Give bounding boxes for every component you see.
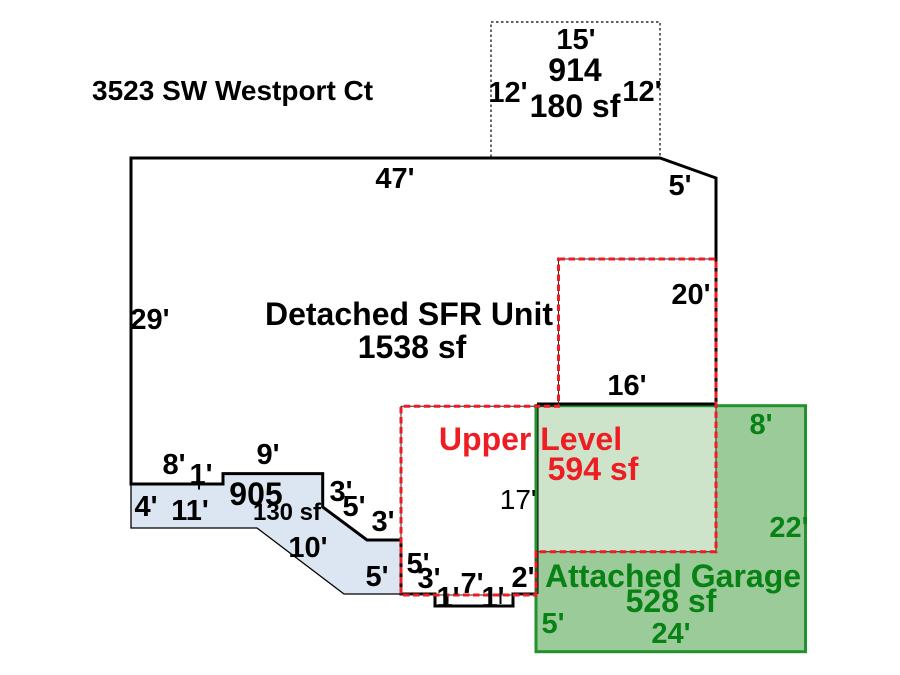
svg-text:5': 5' bbox=[541, 608, 564, 640]
svg-text:20': 20' bbox=[671, 279, 710, 311]
svg-text:3': 3' bbox=[371, 506, 394, 538]
svg-text:22': 22' bbox=[769, 512, 808, 544]
svg-text:3523 SW Westport Ct: 3523 SW Westport Ct bbox=[92, 75, 373, 106]
svg-text:528 sf: 528 sf bbox=[626, 583, 717, 619]
svg-text:130 sf: 130 sf bbox=[253, 499, 322, 526]
svg-text:11': 11' bbox=[171, 495, 209, 527]
svg-text:1': 1' bbox=[189, 459, 212, 491]
svg-text:9': 9' bbox=[256, 439, 279, 471]
svg-text:8': 8' bbox=[749, 409, 772, 441]
svg-text:1538 sf: 1538 sf bbox=[358, 329, 467, 365]
svg-text:7': 7' bbox=[460, 568, 483, 600]
svg-text:180 sf: 180 sf bbox=[530, 88, 621, 124]
svg-text:914: 914 bbox=[548, 52, 602, 88]
svg-text:4': 4' bbox=[134, 491, 157, 523]
svg-text:24': 24' bbox=[651, 618, 690, 650]
svg-text:29': 29' bbox=[130, 304, 169, 336]
svg-text:12': 12' bbox=[622, 76, 661, 108]
svg-text:17': 17' bbox=[500, 484, 537, 515]
svg-text:10': 10' bbox=[288, 532, 327, 564]
svg-text:47': 47' bbox=[375, 163, 414, 195]
svg-text:1': 1' bbox=[481, 582, 504, 614]
svg-text:594 sf: 594 sf bbox=[548, 451, 639, 487]
svg-text:Detached SFR Unit: Detached SFR Unit bbox=[265, 296, 553, 332]
svg-text:16': 16' bbox=[607, 370, 646, 402]
svg-text:5': 5' bbox=[342, 491, 365, 523]
svg-text:12': 12' bbox=[488, 77, 527, 109]
svg-text:8': 8' bbox=[162, 449, 185, 481]
svg-text:5': 5' bbox=[668, 170, 691, 202]
svg-text:5': 5' bbox=[365, 561, 388, 593]
svg-text:2': 2' bbox=[511, 562, 534, 594]
svg-text:1': 1' bbox=[436, 582, 459, 614]
